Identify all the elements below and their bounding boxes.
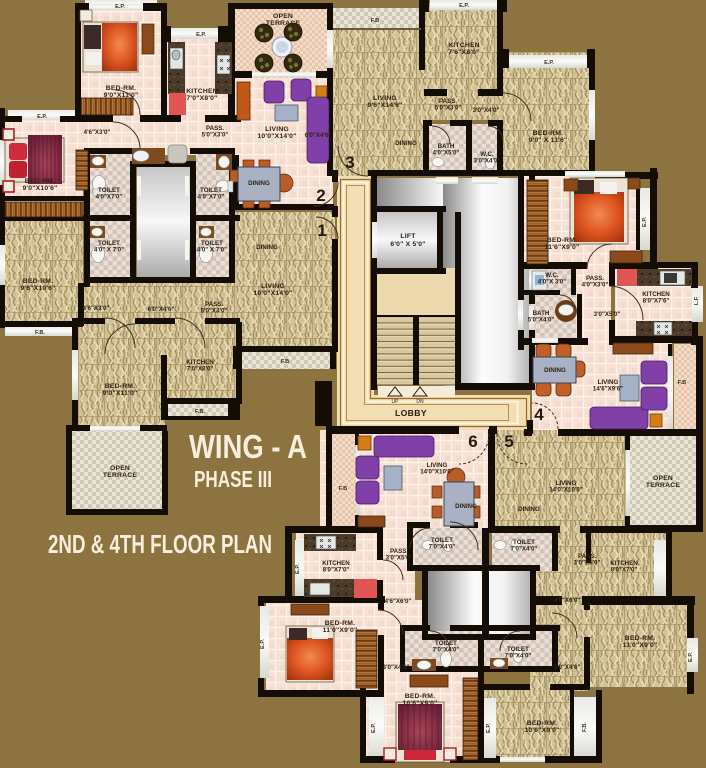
svg-text:TOILET7'0"X4'0": TOILET7'0"X4'0"	[505, 646, 532, 660]
svg-text:KITCHEN8'0"X7'6": KITCHEN8'0"X7'6"	[642, 291, 670, 305]
svg-text:KITCHEN7'0"X8'0": KITCHEN7'0"X8'0"	[186, 88, 218, 102]
svg-text:3'0"X4'6": 3'0"X4'6"	[383, 664, 410, 671]
svg-text:E.P.: E.P.	[486, 723, 492, 733]
svg-text:5: 5	[504, 432, 513, 451]
svg-text:LOBBY: LOBBY	[395, 408, 427, 418]
svg-text:TOILET7'0"X4'0": TOILET7'0"X4'0"	[433, 640, 460, 654]
svg-text:BED-RM.11'0"X9'0": BED-RM.11'0"X9'0"	[323, 620, 358, 634]
svg-text:E.P.: E.P.	[115, 4, 125, 10]
svg-text:3'0"X5'0": 3'0"X5'0"	[594, 311, 621, 318]
svg-text:TOILET7'0"X4'0": TOILET7'0"X4'0"	[511, 539, 538, 553]
svg-text:DINING: DINING	[395, 140, 417, 147]
svg-text:E.P.: E.P.	[642, 217, 648, 227]
svg-text:4'5"X6'0": 4'5"X6'0"	[554, 597, 581, 604]
svg-text:F.B.: F.B.	[195, 409, 205, 415]
svg-text:E.P.: E.P.	[37, 114, 47, 120]
svg-text:DINING: DINING	[248, 180, 270, 187]
svg-text:4'6"X6'0": 4'6"X6'0"	[385, 598, 412, 605]
svg-text:BED-RM.9'0"X11'0": BED-RM.9'0"X11'0"	[104, 85, 139, 99]
svg-text:E.P.: E.P.	[295, 564, 301, 574]
svg-text:BED-RM.10'6"X9'0": BED-RM.10'6"X9'0"	[402, 693, 437, 707]
svg-text:F.B: F.B	[339, 486, 347, 492]
svg-text:BED-RM.9'6"X10'6": BED-RM.9'6"X10'6"	[20, 278, 55, 292]
svg-text:TOILET4'0"X7'0": TOILET4'0"X7'0"	[198, 187, 225, 201]
svg-text:BED-RM.9'0" X 11'6": BED-RM.9'0" X 11'6"	[529, 130, 568, 144]
svg-text:E.P.: E.P.	[371, 723, 377, 733]
svg-text:BED-RM.9'0"X10'6": BED-RM.9'0"X10'6"	[22, 178, 57, 192]
svg-text:E.P.: E.P.	[260, 639, 266, 649]
svg-text:L.F: L.F	[694, 296, 700, 305]
svg-text:F.B.: F.B.	[582, 722, 588, 732]
svg-text:F.B: F.B	[281, 359, 289, 365]
svg-text:3'0"X4'6": 3'0"X4'6"	[554, 664, 581, 671]
svg-text:BED-RM.11'6"X9'0": BED-RM.11'6"X9'0"	[545, 237, 580, 251]
svg-text:TOILET4'0" X 7'0": TOILET4'0" X 7'0"	[94, 240, 124, 254]
svg-text:E.P.: E.P.	[688, 652, 694, 662]
svg-text:E.P.: E.P.	[544, 60, 554, 66]
svg-text:F.B: F.B	[678, 380, 686, 386]
svg-text:6'0"X4'6": 6'0"X4'6"	[148, 306, 175, 313]
svg-text:6'0"X4'6": 6'0"X4'6"	[305, 132, 332, 139]
svg-text:DINING: DINING	[518, 506, 540, 513]
svg-text:KITCHEN8'0"X7'0": KITCHEN8'0"X7'0"	[610, 560, 638, 574]
svg-text:UP: UP	[392, 399, 400, 405]
svg-text:4'6"X3'0": 4'6"X3'0"	[84, 129, 111, 136]
svg-text:KITCHEN7'0"X8'0": KITCHEN7'0"X8'0"	[186, 359, 214, 373]
svg-text:WING - A: WING - A	[189, 428, 307, 465]
svg-text:1: 1	[317, 221, 326, 240]
svg-text:2: 2	[316, 186, 325, 205]
svg-text:TOILET4'0"X7'0": TOILET4'0"X7'0"	[96, 187, 123, 201]
svg-text:4: 4	[534, 405, 544, 424]
svg-text:BED-RM.10'6"X9'0": BED-RM.10'6"X9'0"	[524, 720, 559, 734]
svg-text:TOILET7'0"X4'0": TOILET7'0"X4'0"	[429, 537, 456, 551]
svg-text:BED-RM.9'0"X11'0": BED-RM.9'0"X11'0"	[103, 383, 138, 397]
svg-text:4'6"X3'0": 4'6"X3'0"	[83, 305, 110, 312]
svg-text:6: 6	[468, 432, 477, 451]
svg-text:3: 3	[345, 153, 354, 172]
svg-text:DINING: DINING	[256, 244, 278, 251]
svg-text:KITCHEN8'0"X7'0": KITCHEN8'0"X7'0"	[322, 560, 350, 574]
svg-text:3'0"X4'0": 3'0"X4'0"	[473, 107, 500, 114]
svg-text:F.B: F.B	[371, 18, 379, 24]
svg-text:F.B.: F.B.	[35, 330, 45, 336]
svg-text:BED-RM.11'0"X9'0": BED-RM.11'0"X9'0"	[623, 635, 658, 649]
svg-text:KITCHEN7'6"X8'0": KITCHEN7'6"X8'0"	[448, 42, 480, 56]
svg-text:PHASE III: PHASE III	[194, 466, 272, 492]
svg-text:DINING: DINING	[455, 503, 477, 510]
svg-text:TOILET4'0" X 7'0": TOILET4'0" X 7'0"	[197, 240, 227, 254]
svg-text:2ND & 4TH FLOOR PLAN: 2ND & 4TH FLOOR PLAN	[48, 529, 272, 559]
svg-text:E.P.: E.P.	[196, 32, 206, 38]
svg-text:E.P.: E.P.	[459, 3, 469, 9]
svg-text:DN: DN	[416, 399, 424, 405]
svg-text:DINING: DINING	[544, 367, 566, 374]
